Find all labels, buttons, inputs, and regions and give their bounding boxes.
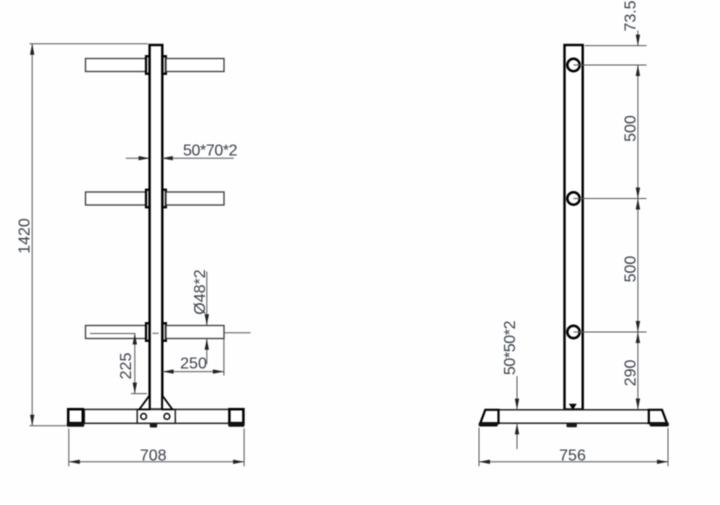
svg-text:756: 756 (559, 448, 586, 465)
svg-text:1420: 1420 (16, 218, 33, 254)
svg-text:500: 500 (623, 115, 640, 142)
svg-text:500: 500 (623, 256, 640, 283)
svg-text:225: 225 (118, 353, 135, 380)
svg-text:73.5: 73.5 (623, 0, 640, 31)
svg-text:708: 708 (140, 448, 167, 465)
svg-text:50*50*2: 50*50*2 (502, 320, 519, 375)
svg-text:290: 290 (623, 359, 640, 386)
svg-text:250: 250 (180, 356, 207, 373)
svg-text:50*70*2: 50*70*2 (183, 143, 238, 160)
